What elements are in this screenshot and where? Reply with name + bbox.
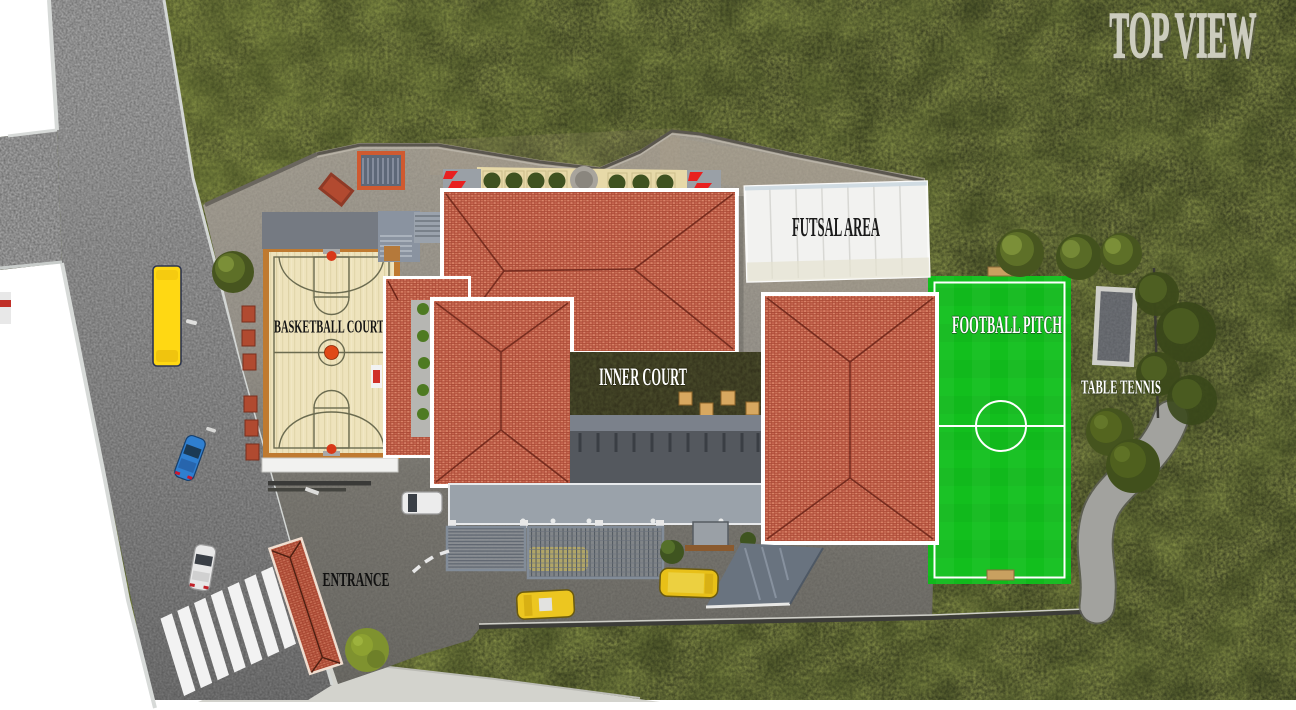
svg-text:INNER COURT: INNER COURT [599,363,687,391]
svg-text:BASKETBALL COURT: BASKETBALL COURT [274,316,384,336]
svg-text:TOP VIEW: TOP VIEW [1110,0,1257,72]
svg-text:TABLE TENNIS: TABLE TENNIS [1081,375,1161,398]
svg-text:FUTSAL AREA: FUTSAL AREA [792,213,880,243]
svg-text:ENTRANCE: ENTRANCE [323,570,390,592]
svg-text:FOOTBALL PITCH: FOOTBALL PITCH [952,310,1062,338]
